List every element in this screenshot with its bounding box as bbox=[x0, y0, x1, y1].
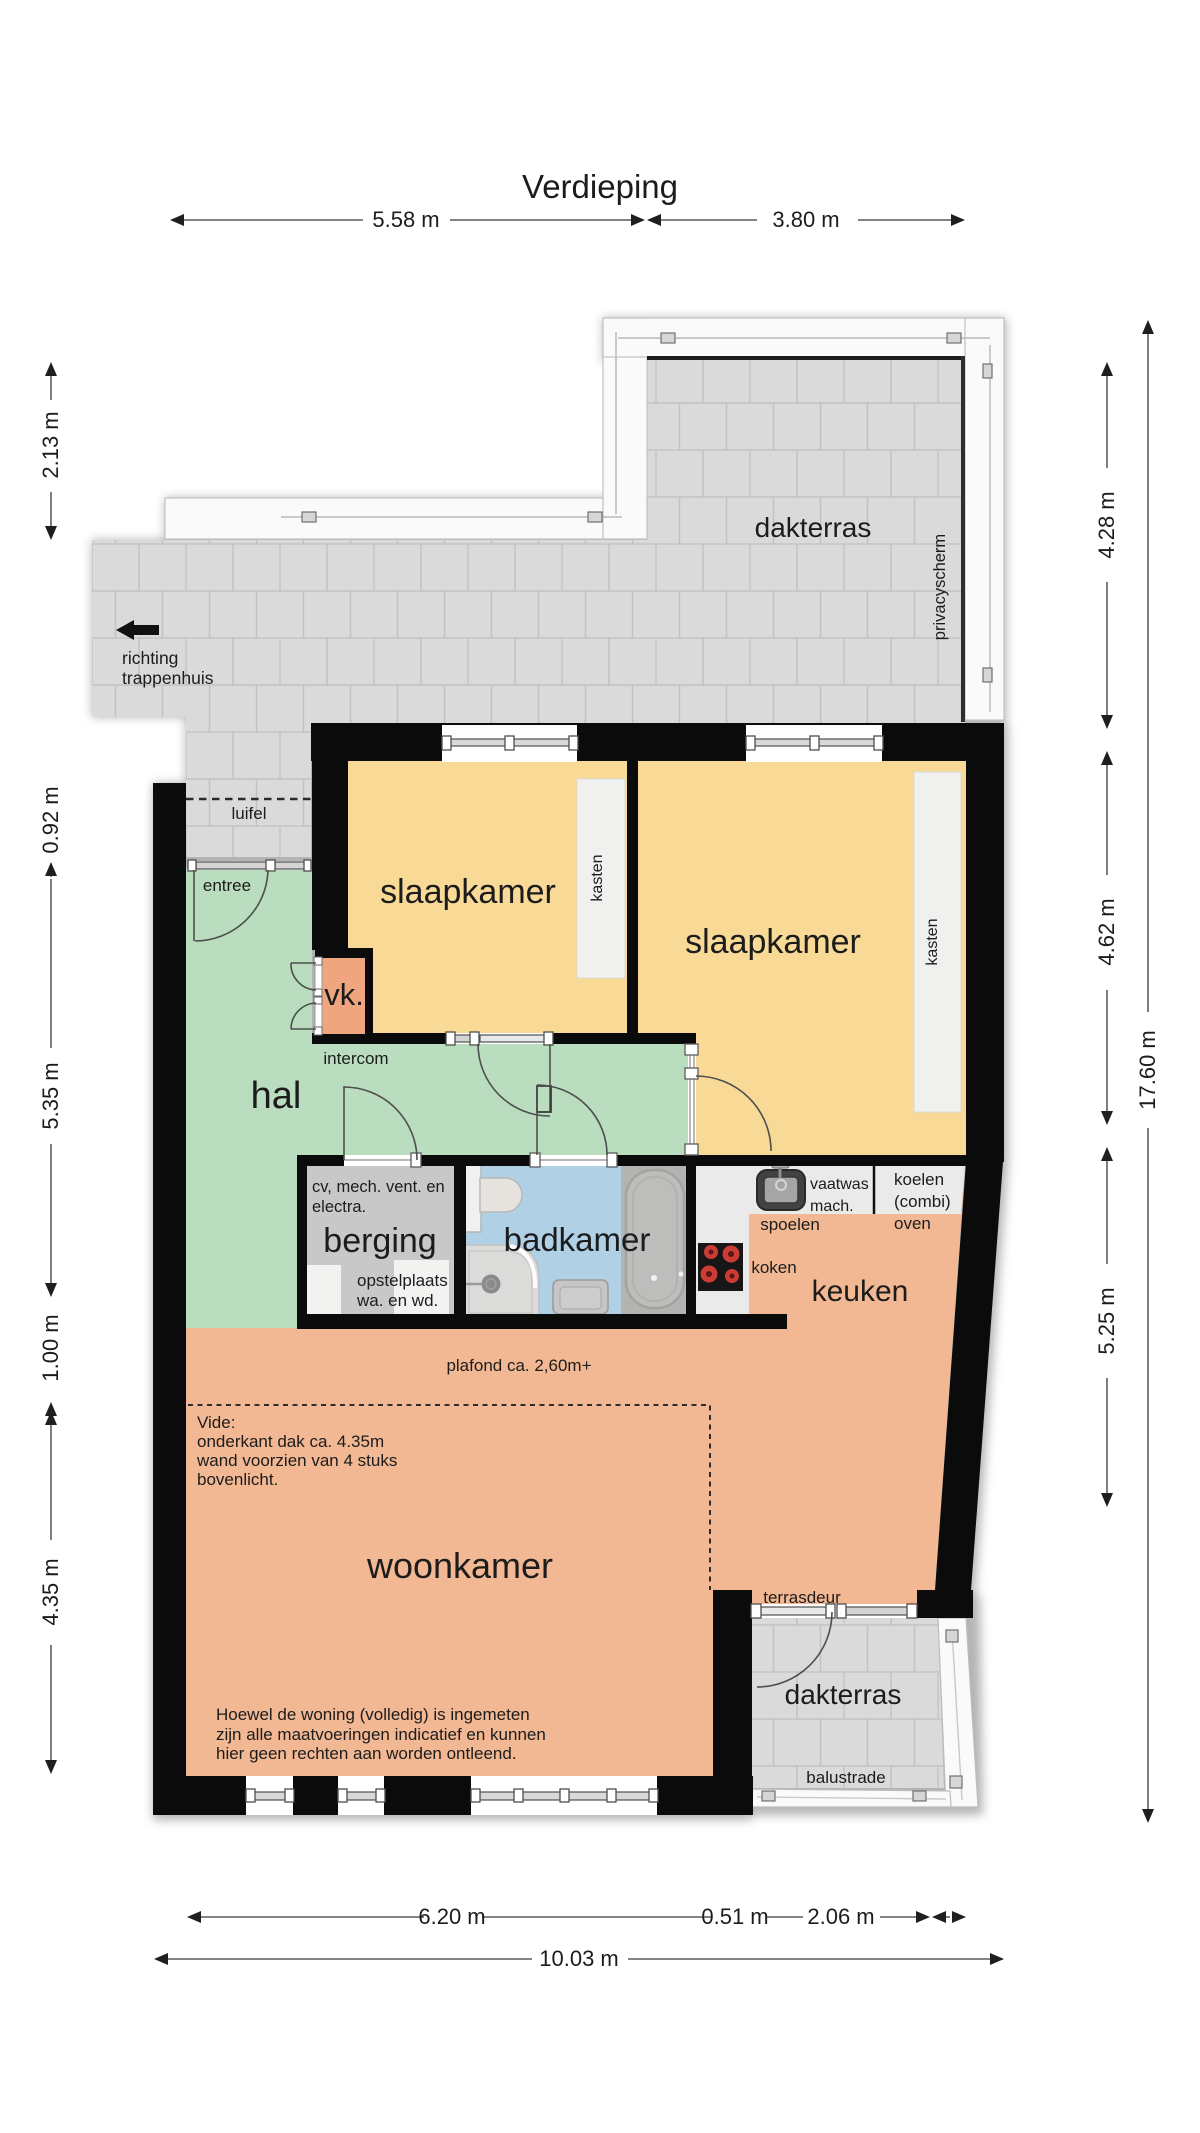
svg-text:5.35 m: 5.35 m bbox=[38, 1062, 63, 1129]
svg-text:bovenlicht.: bovenlicht. bbox=[197, 1470, 278, 1489]
svg-text:berging: berging bbox=[323, 1222, 436, 1260]
svg-text:zijn alle maatvoeringen indica: zijn alle maatvoeringen indicatief en ku… bbox=[216, 1725, 546, 1744]
svg-text:4.62 m: 4.62 m bbox=[1094, 898, 1119, 965]
svg-text:5.58 m: 5.58 m bbox=[372, 207, 439, 232]
svg-text:slaapkamer: slaapkamer bbox=[380, 873, 556, 911]
svg-text:trappenhuis: trappenhuis bbox=[122, 668, 214, 688]
svg-text:intercom: intercom bbox=[323, 1049, 388, 1068]
svg-text:dakterras: dakterras bbox=[755, 512, 872, 543]
svg-text:4.35 m: 4.35 m bbox=[38, 1558, 63, 1625]
svg-text:spoelen: spoelen bbox=[760, 1215, 820, 1234]
svg-text:mach.: mach. bbox=[810, 1198, 854, 1215]
svg-text:luifel: luifel bbox=[232, 804, 267, 823]
svg-text:10.03 m: 10.03 m bbox=[539, 1946, 619, 1971]
svg-text:0.51 m: 0.51 m bbox=[701, 1904, 768, 1929]
svg-text:0.92 m: 0.92 m bbox=[38, 786, 63, 853]
svg-text:privacyscherm: privacyscherm bbox=[931, 534, 949, 640]
svg-text:(combi): (combi) bbox=[894, 1192, 951, 1211]
svg-text:terrasdeur: terrasdeur bbox=[763, 1588, 841, 1607]
svg-text:hier geen rechten aan worden o: hier geen rechten aan worden ontleend. bbox=[216, 1744, 517, 1763]
svg-text:Hoewel de woning (volledig) is: Hoewel de woning (volledig) is ingemeten bbox=[216, 1705, 530, 1724]
svg-text:badkamer: badkamer bbox=[504, 1221, 651, 1258]
svg-text:woonkamer: woonkamer bbox=[366, 1545, 553, 1586]
svg-text:plafond ca. 2,60m+: plafond ca. 2,60m+ bbox=[446, 1356, 591, 1375]
svg-text:opstelplaats: opstelplaats bbox=[357, 1271, 448, 1290]
svg-text:hal: hal bbox=[251, 1075, 302, 1117]
svg-text:6.20 m: 6.20 m bbox=[418, 1904, 485, 1929]
svg-text:electra.: electra. bbox=[312, 1198, 366, 1216]
svg-text:4.28 m: 4.28 m bbox=[1094, 491, 1119, 558]
svg-text:3.80 m: 3.80 m bbox=[772, 207, 839, 232]
svg-text:dakterras: dakterras bbox=[785, 1679, 902, 1710]
svg-text:Vide:: Vide: bbox=[197, 1413, 235, 1432]
svg-text:1.00 m: 1.00 m bbox=[38, 1314, 63, 1381]
svg-text:cv, mech. vent. en: cv, mech. vent. en bbox=[312, 1178, 445, 1196]
svg-text:2.13 m: 2.13 m bbox=[38, 411, 63, 478]
svg-text:slaapkamer: slaapkamer bbox=[685, 923, 861, 961]
svg-text:keuken: keuken bbox=[812, 1275, 909, 1308]
svg-text:kasten: kasten bbox=[924, 918, 941, 965]
svg-text:wand voorzien van 4 stuks: wand voorzien van 4 stuks bbox=[196, 1451, 397, 1470]
svg-text:entree: entree bbox=[203, 876, 251, 895]
svg-text:5.25 m: 5.25 m bbox=[1094, 1287, 1119, 1354]
svg-text:richting: richting bbox=[122, 648, 178, 668]
svg-text:koelen: koelen bbox=[894, 1170, 944, 1189]
svg-text:wa. en wd.: wa. en wd. bbox=[356, 1291, 438, 1310]
svg-text:balustrade: balustrade bbox=[806, 1768, 885, 1787]
svg-text:vaatwas: vaatwas bbox=[810, 1176, 869, 1193]
svg-text:2.06 m: 2.06 m bbox=[807, 1904, 874, 1929]
svg-text:vk.: vk. bbox=[324, 977, 364, 1012]
svg-text:17.60 m: 17.60 m bbox=[1135, 1030, 1160, 1110]
svg-text:oven: oven bbox=[894, 1214, 931, 1233]
svg-text:onderkant dak ca. 4.35m: onderkant dak ca. 4.35m bbox=[197, 1432, 384, 1451]
svg-text:kasten: kasten bbox=[589, 854, 606, 901]
svg-text:Verdieping: Verdieping bbox=[522, 168, 678, 205]
svg-text:koken: koken bbox=[751, 1258, 796, 1277]
